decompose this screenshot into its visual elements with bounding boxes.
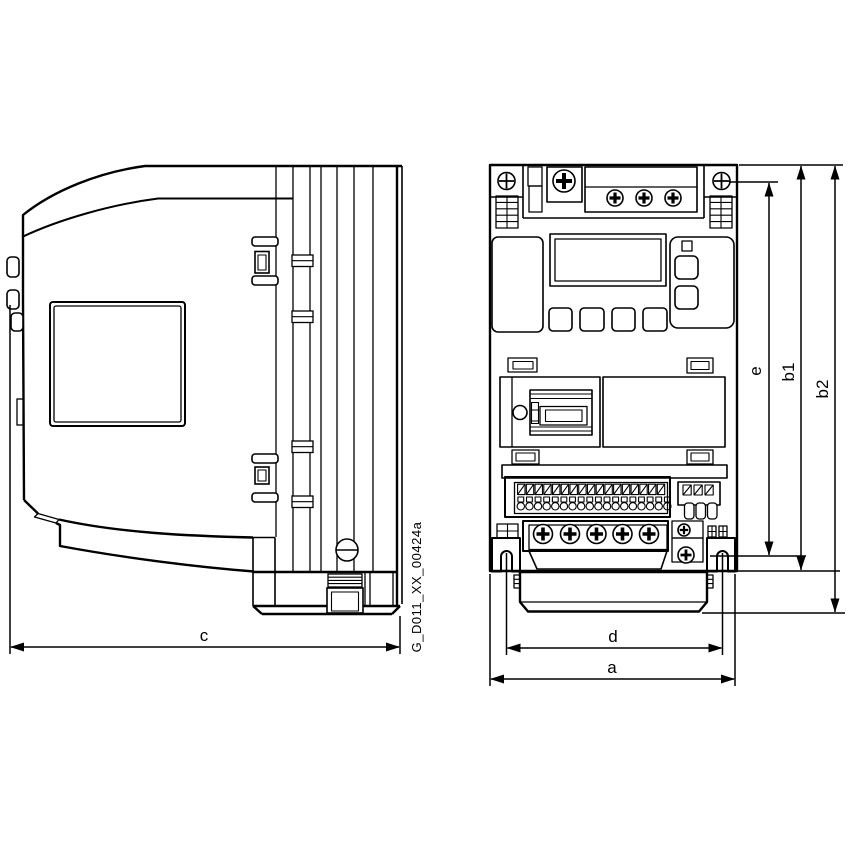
- phillips-screw-icon: [678, 524, 690, 536]
- dim-c-label: c: [200, 626, 209, 645]
- dim-b2-label: b2: [813, 380, 832, 399]
- phillips-screw-icon: [640, 525, 659, 544]
- side-cover-panel: [492, 237, 543, 332]
- relay-tab: [685, 503, 695, 519]
- din-clip: [292, 496, 313, 508]
- keypad-right-panel: [670, 237, 734, 328]
- terminal-opening: [612, 497, 619, 510]
- terminal-slot: [544, 484, 551, 494]
- din-clip: [292, 441, 313, 453]
- dim-b1-label: b1: [779, 363, 798, 382]
- keypad-button[interactable]: [612, 308, 635, 331]
- front-view: [490, 165, 737, 612]
- terminal-slot: [526, 484, 533, 494]
- keypad-button[interactable]: [675, 286, 698, 309]
- terminal-slot: [657, 484, 664, 494]
- terminal-opening: [517, 497, 524, 510]
- terminal-opening: [560, 497, 567, 510]
- bus-connector: [530, 390, 592, 435]
- terminal-slot: [561, 484, 568, 494]
- phillips-screw-icon: [587, 525, 606, 544]
- terminal-opening: [638, 497, 645, 510]
- terminal-slot: [535, 484, 542, 494]
- terminal-opening: [621, 497, 628, 510]
- side-knockout-window: [50, 302, 185, 426]
- module-bay: [603, 377, 725, 447]
- relay-tab: [708, 503, 718, 519]
- dim-e-label: e: [746, 366, 765, 375]
- side-heatsink-fins: [276, 167, 373, 572]
- terminal-opening: [655, 497, 662, 510]
- terminal-opening: [543, 497, 550, 510]
- dimension-drawing-page: c d a e b1 b2 G_D011_XX_00424a: [0, 0, 850, 850]
- front-power-terminals: [497, 521, 727, 569]
- phillips-screw-icon: [607, 190, 623, 206]
- keypad-button[interactable]: [549, 308, 572, 331]
- phillips-screw-icon: [665, 190, 681, 206]
- phillips-screw-icon: [713, 173, 730, 190]
- terminal-slot: [570, 484, 577, 494]
- din-clip: [292, 311, 313, 323]
- phillips-screw-icon: [553, 170, 575, 192]
- phillips-screw-icon: [534, 525, 553, 544]
- terminal-opening: [603, 497, 610, 510]
- phillips-screw-icon: [636, 190, 652, 206]
- keypad-button[interactable]: [580, 308, 604, 331]
- relay-tab: [696, 503, 706, 519]
- terminal-slot: [518, 484, 525, 494]
- terminal-slot: [631, 484, 638, 494]
- terminal-opening: [629, 497, 636, 510]
- dim-a-label: a: [607, 658, 617, 677]
- phillips-screw-icon: [678, 547, 694, 563]
- relay-slot: [705, 485, 713, 495]
- status-led: [682, 241, 692, 251]
- terminal-opening: [577, 497, 584, 510]
- terminal-slot: [596, 484, 603, 494]
- mounting-foot-right: [707, 538, 735, 572]
- relay-slot: [694, 485, 702, 495]
- keypad-button[interactable]: [675, 256, 698, 279]
- front-display-panel: [492, 234, 734, 332]
- terminal-opening: [646, 497, 653, 510]
- dimension-b2: b2: [702, 166, 845, 614]
- front-io-modules: [500, 358, 727, 478]
- heatsink-ladder: [710, 196, 732, 228]
- terminal-slot: [640, 484, 647, 494]
- terminal-opening: [534, 497, 541, 510]
- technical-drawing: c d a e b1 b2 G_D011_XX_00424a: [0, 0, 850, 850]
- phillips-screw-icon: [561, 525, 580, 544]
- release-button: [513, 406, 527, 420]
- side-snap-hooks: [252, 237, 278, 502]
- keypad-button[interactable]: [643, 308, 667, 331]
- terminal-opening: [526, 497, 533, 510]
- figure-id-label: G_D011_XX_00424a: [409, 521, 424, 652]
- phillips-screw-icon: [613, 525, 632, 544]
- option-module: [500, 377, 600, 447]
- heatsink-ladder: [496, 196, 518, 228]
- front-fan-cover: [514, 572, 713, 612]
- terminal-opening: [569, 497, 576, 510]
- lcd-display: [550, 234, 666, 286]
- relay-slot: [683, 485, 691, 495]
- terminal-slot: [605, 484, 612, 494]
- terminal-slot: [622, 484, 629, 494]
- terminal-slot: [579, 484, 586, 494]
- side-screw: [336, 539, 358, 561]
- terminal-opening: [552, 497, 559, 510]
- terminal-slot: [587, 484, 594, 494]
- dim-d-label: d: [608, 627, 617, 646]
- terminal-opening: [595, 497, 602, 510]
- terminal-slot: [553, 484, 560, 494]
- terminal-slot: [614, 484, 621, 494]
- terminal-slot: [649, 484, 656, 494]
- phillips-screw-icon: [498, 173, 515, 190]
- side-base: [253, 538, 400, 615]
- terminal-opening: [586, 497, 593, 510]
- side-view: [7, 166, 402, 614]
- din-clip: [292, 255, 313, 267]
- front-control-terminals: [505, 477, 720, 519]
